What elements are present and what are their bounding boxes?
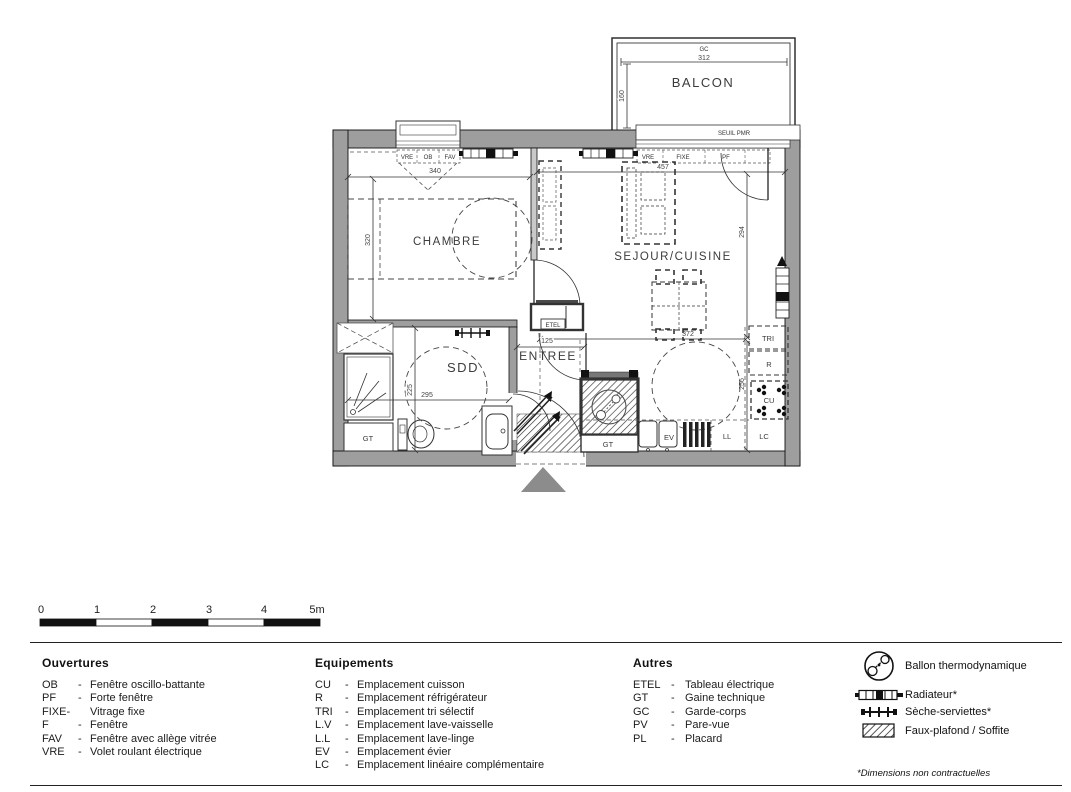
legend-symbol-item: Ballon thermodynamique xyxy=(853,648,1068,684)
sink: EV xyxy=(639,421,677,452)
sep xyxy=(78,706,90,719)
ll-label: LL xyxy=(723,432,731,441)
seuil-pmr-label: SEUIL PMR xyxy=(718,131,751,137)
living-window: SEUIL PMR xyxy=(636,125,800,148)
balcony-label: BALCON xyxy=(672,75,734,90)
scale-tick-1: 1 xyxy=(94,604,100,616)
desc: Emplacement lave-vaisselle xyxy=(357,719,615,732)
desc: Fenêtre avec allège vitrée xyxy=(90,733,304,746)
legend-item: TRI-Emplacement tri sélectif xyxy=(315,706,615,719)
balcony-depth-dim: 160 xyxy=(619,90,626,102)
legend-symbol-item: Radiateur* xyxy=(853,689,1068,701)
abbr: FIXE- xyxy=(42,706,78,719)
tri-label: TRI xyxy=(762,334,774,343)
legend-note: *Dimensions non contractuelles xyxy=(857,768,990,779)
sep: - xyxy=(671,679,685,692)
living-width-dim: 457 xyxy=(657,164,669,171)
gt-label-2: GT xyxy=(603,440,614,449)
symbol-label: Ballon thermodynamique xyxy=(905,660,1027,672)
legend-item: EV-Emplacement évier xyxy=(315,746,615,759)
desc: Garde-corps xyxy=(685,706,843,719)
bedroom: 340 320 CHAMBRE xyxy=(345,161,561,322)
desc: Forte fenêtre xyxy=(90,692,304,705)
tag-fixe: FIXE xyxy=(676,155,689,161)
living-inner-width-dim: 372 xyxy=(682,331,694,338)
legend-item: FAV-Fenêtre avec allège vitrée xyxy=(42,733,304,746)
legend-symbol-item: Sèche-serviettes* xyxy=(853,706,1068,718)
desc: Gaine technique xyxy=(685,692,843,705)
legend-item: PV-Pare-vue xyxy=(633,719,843,732)
symbol-label: Sèche-serviettes* xyxy=(905,706,991,718)
sep: - xyxy=(78,733,90,746)
scale-bar: 0 1 2 3 4 5m xyxy=(38,604,325,626)
bedroom-window-tags: VRE OB FAV xyxy=(350,150,460,190)
scale-tick-2: 2 xyxy=(150,604,156,616)
abbr: PF xyxy=(42,692,78,705)
sep: - xyxy=(345,746,357,759)
legend-item: CU-Emplacement cuisson xyxy=(315,679,615,692)
electrical-cabinet: ETEL xyxy=(531,300,583,330)
washbasin xyxy=(482,406,512,455)
bedroom-depth-dim: 320 xyxy=(365,234,372,246)
radiator-icon xyxy=(579,149,638,158)
balcony-width-dim: 312 xyxy=(698,55,710,62)
abbr: GC xyxy=(633,706,671,719)
entrance-arrow xyxy=(521,467,566,492)
legend-equipements-title: Equipements xyxy=(315,656,615,670)
sep: - xyxy=(671,719,685,732)
legend-autres: Autres ETEL-Tableau électrique GT-Gaine … xyxy=(633,656,843,746)
legend-item: F-Fenêtre xyxy=(42,719,304,732)
bedroom-window xyxy=(396,121,460,148)
water-heater-closet xyxy=(581,379,638,435)
gt-label: GT xyxy=(363,434,374,443)
bathroom: GT 295 225 SDD xyxy=(337,323,512,455)
desc: Emplacement linéaire complémentaire xyxy=(357,759,615,772)
abbr: PL xyxy=(633,733,671,746)
tag-vre-2: VRE xyxy=(642,155,654,161)
dining-table xyxy=(652,270,706,340)
entry: ETEL 125 ENTREE xyxy=(513,300,587,457)
legend-item: OB-Fenêtre oscillo-battante xyxy=(42,679,304,692)
desc: Emplacement tri sélectif xyxy=(357,706,615,719)
desc: Emplacement cuisson xyxy=(357,679,615,692)
legend-item: L.L-Emplacement lave-linge xyxy=(315,733,615,746)
sep: - xyxy=(78,719,90,732)
sep: - xyxy=(345,759,357,772)
abbr: TRI xyxy=(315,706,345,719)
legend-item: ETEL-Tableau électrique xyxy=(633,679,843,692)
bedroom-door xyxy=(534,260,580,306)
radiator-icon xyxy=(459,149,518,158)
sep: - xyxy=(671,733,685,746)
soffit-hatch xyxy=(517,414,583,452)
legend-equipements: Equipements CU-Emplacement cuisson R-Emp… xyxy=(315,656,615,773)
legend-symbols: Ballon thermodynamique Radiateur* Sèche-… xyxy=(853,648,1068,744)
bathroom-label: SDD xyxy=(447,360,479,375)
etel-label: ETEL xyxy=(545,323,561,329)
soffit-hatch-icon xyxy=(853,723,905,739)
legend-autres-title: Autres xyxy=(633,656,843,670)
abbr: VRE xyxy=(42,746,78,759)
legend-item: PF-Forte fenêtre xyxy=(42,692,304,705)
abbr: ETEL xyxy=(633,679,671,692)
bathroom-width-dim: 295 xyxy=(421,392,433,399)
legend-item: PL-Placard xyxy=(633,733,843,746)
abbr: L.V xyxy=(315,719,345,732)
lc-label: LC xyxy=(759,432,769,441)
desc: Emplacement réfrigérateur xyxy=(357,692,615,705)
legend-bottom-rule xyxy=(30,785,1062,786)
tag-fav: FAV xyxy=(445,155,456,161)
legend-item: GT-Gaine technique xyxy=(633,692,843,705)
desc: Emplacement lave-linge xyxy=(357,733,615,746)
abbr: PV xyxy=(633,719,671,732)
desc: Emplacement évier xyxy=(357,746,615,759)
dishwasher xyxy=(683,422,711,447)
living-label: SEJOUR/CUISINE xyxy=(614,251,732,263)
tag-ob: OB xyxy=(424,155,433,161)
living-depth-dim: 294 xyxy=(739,226,746,238)
scale-tick-4: 4 xyxy=(261,604,267,616)
legend-item: LC-Emplacement linéaire complémentaire xyxy=(315,759,615,772)
bedroom-width-dim: 340 xyxy=(429,168,441,175)
legend-item: L.V-Emplacement lave-vaisselle xyxy=(315,719,615,732)
radiator-icon xyxy=(853,689,905,701)
sep: - xyxy=(671,706,685,719)
shower xyxy=(344,354,393,420)
legend-item: FIXE-Vitrage fixe xyxy=(42,706,304,719)
symbol-label: Faux-plafond / Soffite xyxy=(905,725,1009,737)
legend-item: R-Emplacement réfrigérateur xyxy=(315,692,615,705)
desc: Pare-vue xyxy=(685,719,843,732)
abbr: L.L xyxy=(315,733,345,746)
bedroom-label: CHAMBRE xyxy=(413,236,481,248)
scale-tick-5: 5m xyxy=(309,604,324,616)
scale-tick-0: 0 xyxy=(38,604,44,616)
tag-vre: VRE xyxy=(401,155,413,161)
sep: - xyxy=(345,679,357,692)
desc: Volet roulant électrique xyxy=(90,746,304,759)
sep: - xyxy=(78,692,90,705)
abbr: EV xyxy=(315,746,345,759)
gaine-technique-box: GT xyxy=(581,435,638,452)
desc: Tableau électrique xyxy=(685,679,843,692)
abbr: CU xyxy=(315,679,345,692)
abbr: FAV xyxy=(42,733,78,746)
abbr: GT xyxy=(633,692,671,705)
floorplan-page: GC 312 160 BALCON SEUIL PMR VRE OB FAV xyxy=(0,0,1071,792)
legend-item: GC-Garde-corps xyxy=(633,706,843,719)
desc: Placard xyxy=(685,733,843,746)
cooktop: CU xyxy=(751,381,788,419)
abbr: LC xyxy=(315,759,345,772)
sep: - xyxy=(78,746,90,759)
ev-label: EV xyxy=(664,433,674,442)
turning-circle xyxy=(652,342,740,430)
abbr: OB xyxy=(42,679,78,692)
wardrobe xyxy=(539,161,561,249)
legend-top-rule xyxy=(30,642,1062,643)
toilet xyxy=(398,419,434,450)
towel-dryer-icon xyxy=(455,328,490,338)
symbol-label: Radiateur* xyxy=(905,689,957,701)
legend-symbol-item: Faux-plafond / Soffite xyxy=(853,723,1068,739)
sep: - xyxy=(345,733,357,746)
kitchen: GT EV LL LC TRI R CU xyxy=(581,326,788,452)
balcony-gc-label: GC xyxy=(700,47,710,53)
shaft-box xyxy=(337,323,393,353)
cu-label: CU xyxy=(764,396,775,405)
water-heater-icon xyxy=(853,648,905,684)
bathroom-depth-dim: 225 xyxy=(407,384,414,396)
sep: - xyxy=(345,692,357,705)
floor-plan-svg: GC 312 160 BALCON SEUIL PMR VRE OB FAV xyxy=(0,0,1071,640)
sep: - xyxy=(345,719,357,732)
tag-pf: PF xyxy=(722,155,730,161)
living-window-tags: VRE FIXE PF xyxy=(637,150,770,163)
scale-tick-3: 3 xyxy=(206,604,212,616)
desc: Fenêtre xyxy=(90,719,304,732)
sep: - xyxy=(78,679,90,692)
legend-ouvertures-title: Ouvertures xyxy=(42,656,304,670)
towel-dryer-icon xyxy=(853,706,905,718)
gaine-technique-box: GT xyxy=(344,423,393,451)
sep: - xyxy=(671,692,685,705)
desc: Vitrage fixe xyxy=(90,706,304,719)
sep: - xyxy=(345,706,357,719)
abbr: R xyxy=(315,692,345,705)
entry-width-dim: 125 xyxy=(541,338,553,345)
abbr: F xyxy=(42,719,78,732)
legend-ouvertures: Ouvertures OB-Fenêtre oscillo-battante P… xyxy=(42,656,304,759)
sofa xyxy=(622,162,675,244)
legend-item: VRE-Volet roulant électrique xyxy=(42,746,304,759)
desc: Fenêtre oscillo-battante xyxy=(90,679,304,692)
r-label: R xyxy=(766,360,772,369)
